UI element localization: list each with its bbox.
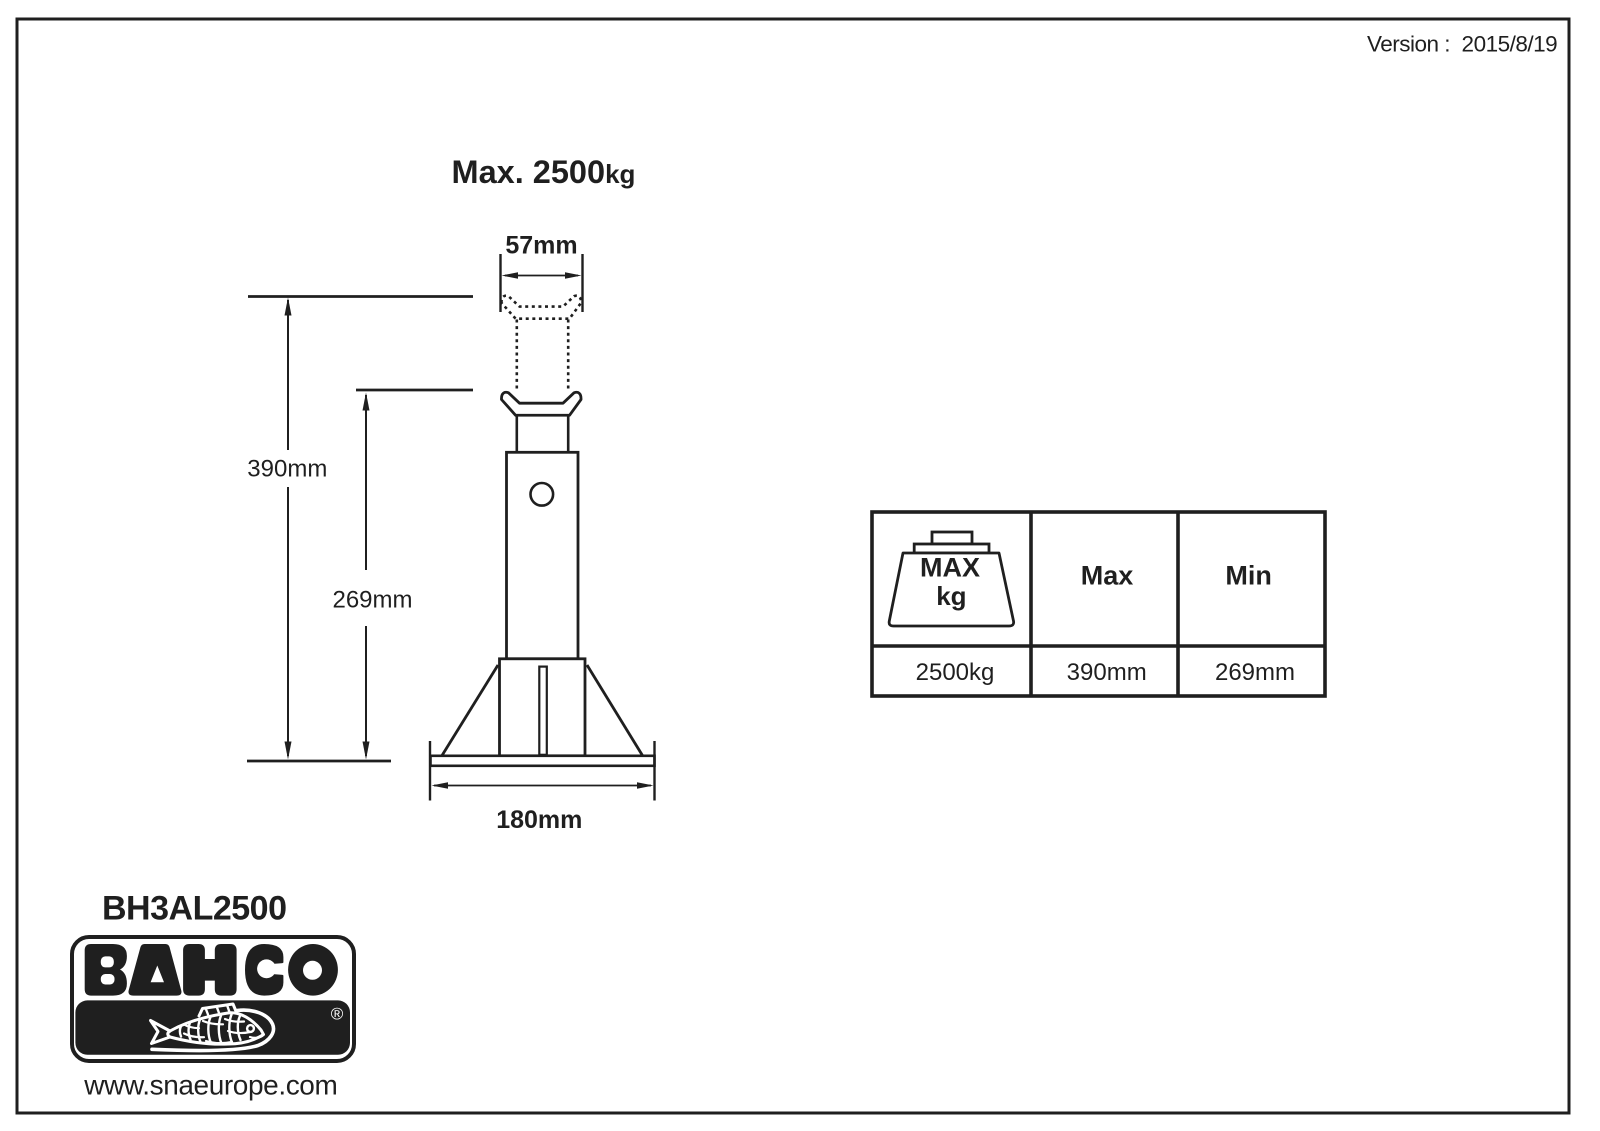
svg-text:390mm: 390mm xyxy=(247,455,327,482)
svg-text:180mm: 180mm xyxy=(496,806,582,834)
svg-text:www.snaeurope.com: www.snaeurope.com xyxy=(83,1070,337,1101)
svg-text:269mm: 269mm xyxy=(1215,659,1295,686)
svg-text:Max. 2500kg: Max. 2500kg xyxy=(452,154,636,190)
svg-text:MAX: MAX xyxy=(920,553,980,583)
svg-text:kg: kg xyxy=(936,581,966,611)
svg-text:®: ® xyxy=(331,1005,344,1024)
svg-text:Max: Max xyxy=(1081,560,1134,590)
svg-text:2500kg: 2500kg xyxy=(916,659,995,686)
svg-text:Version : 2015/8/19: Version : 2015/8/19 xyxy=(1367,31,1557,56)
svg-text:57mm: 57mm xyxy=(505,231,577,259)
svg-text:390mm: 390mm xyxy=(1067,659,1147,686)
svg-text:Min: Min xyxy=(1225,560,1272,590)
svg-text:269mm: 269mm xyxy=(332,586,412,613)
svg-text:BH3AL2500: BH3AL2500 xyxy=(102,890,286,928)
